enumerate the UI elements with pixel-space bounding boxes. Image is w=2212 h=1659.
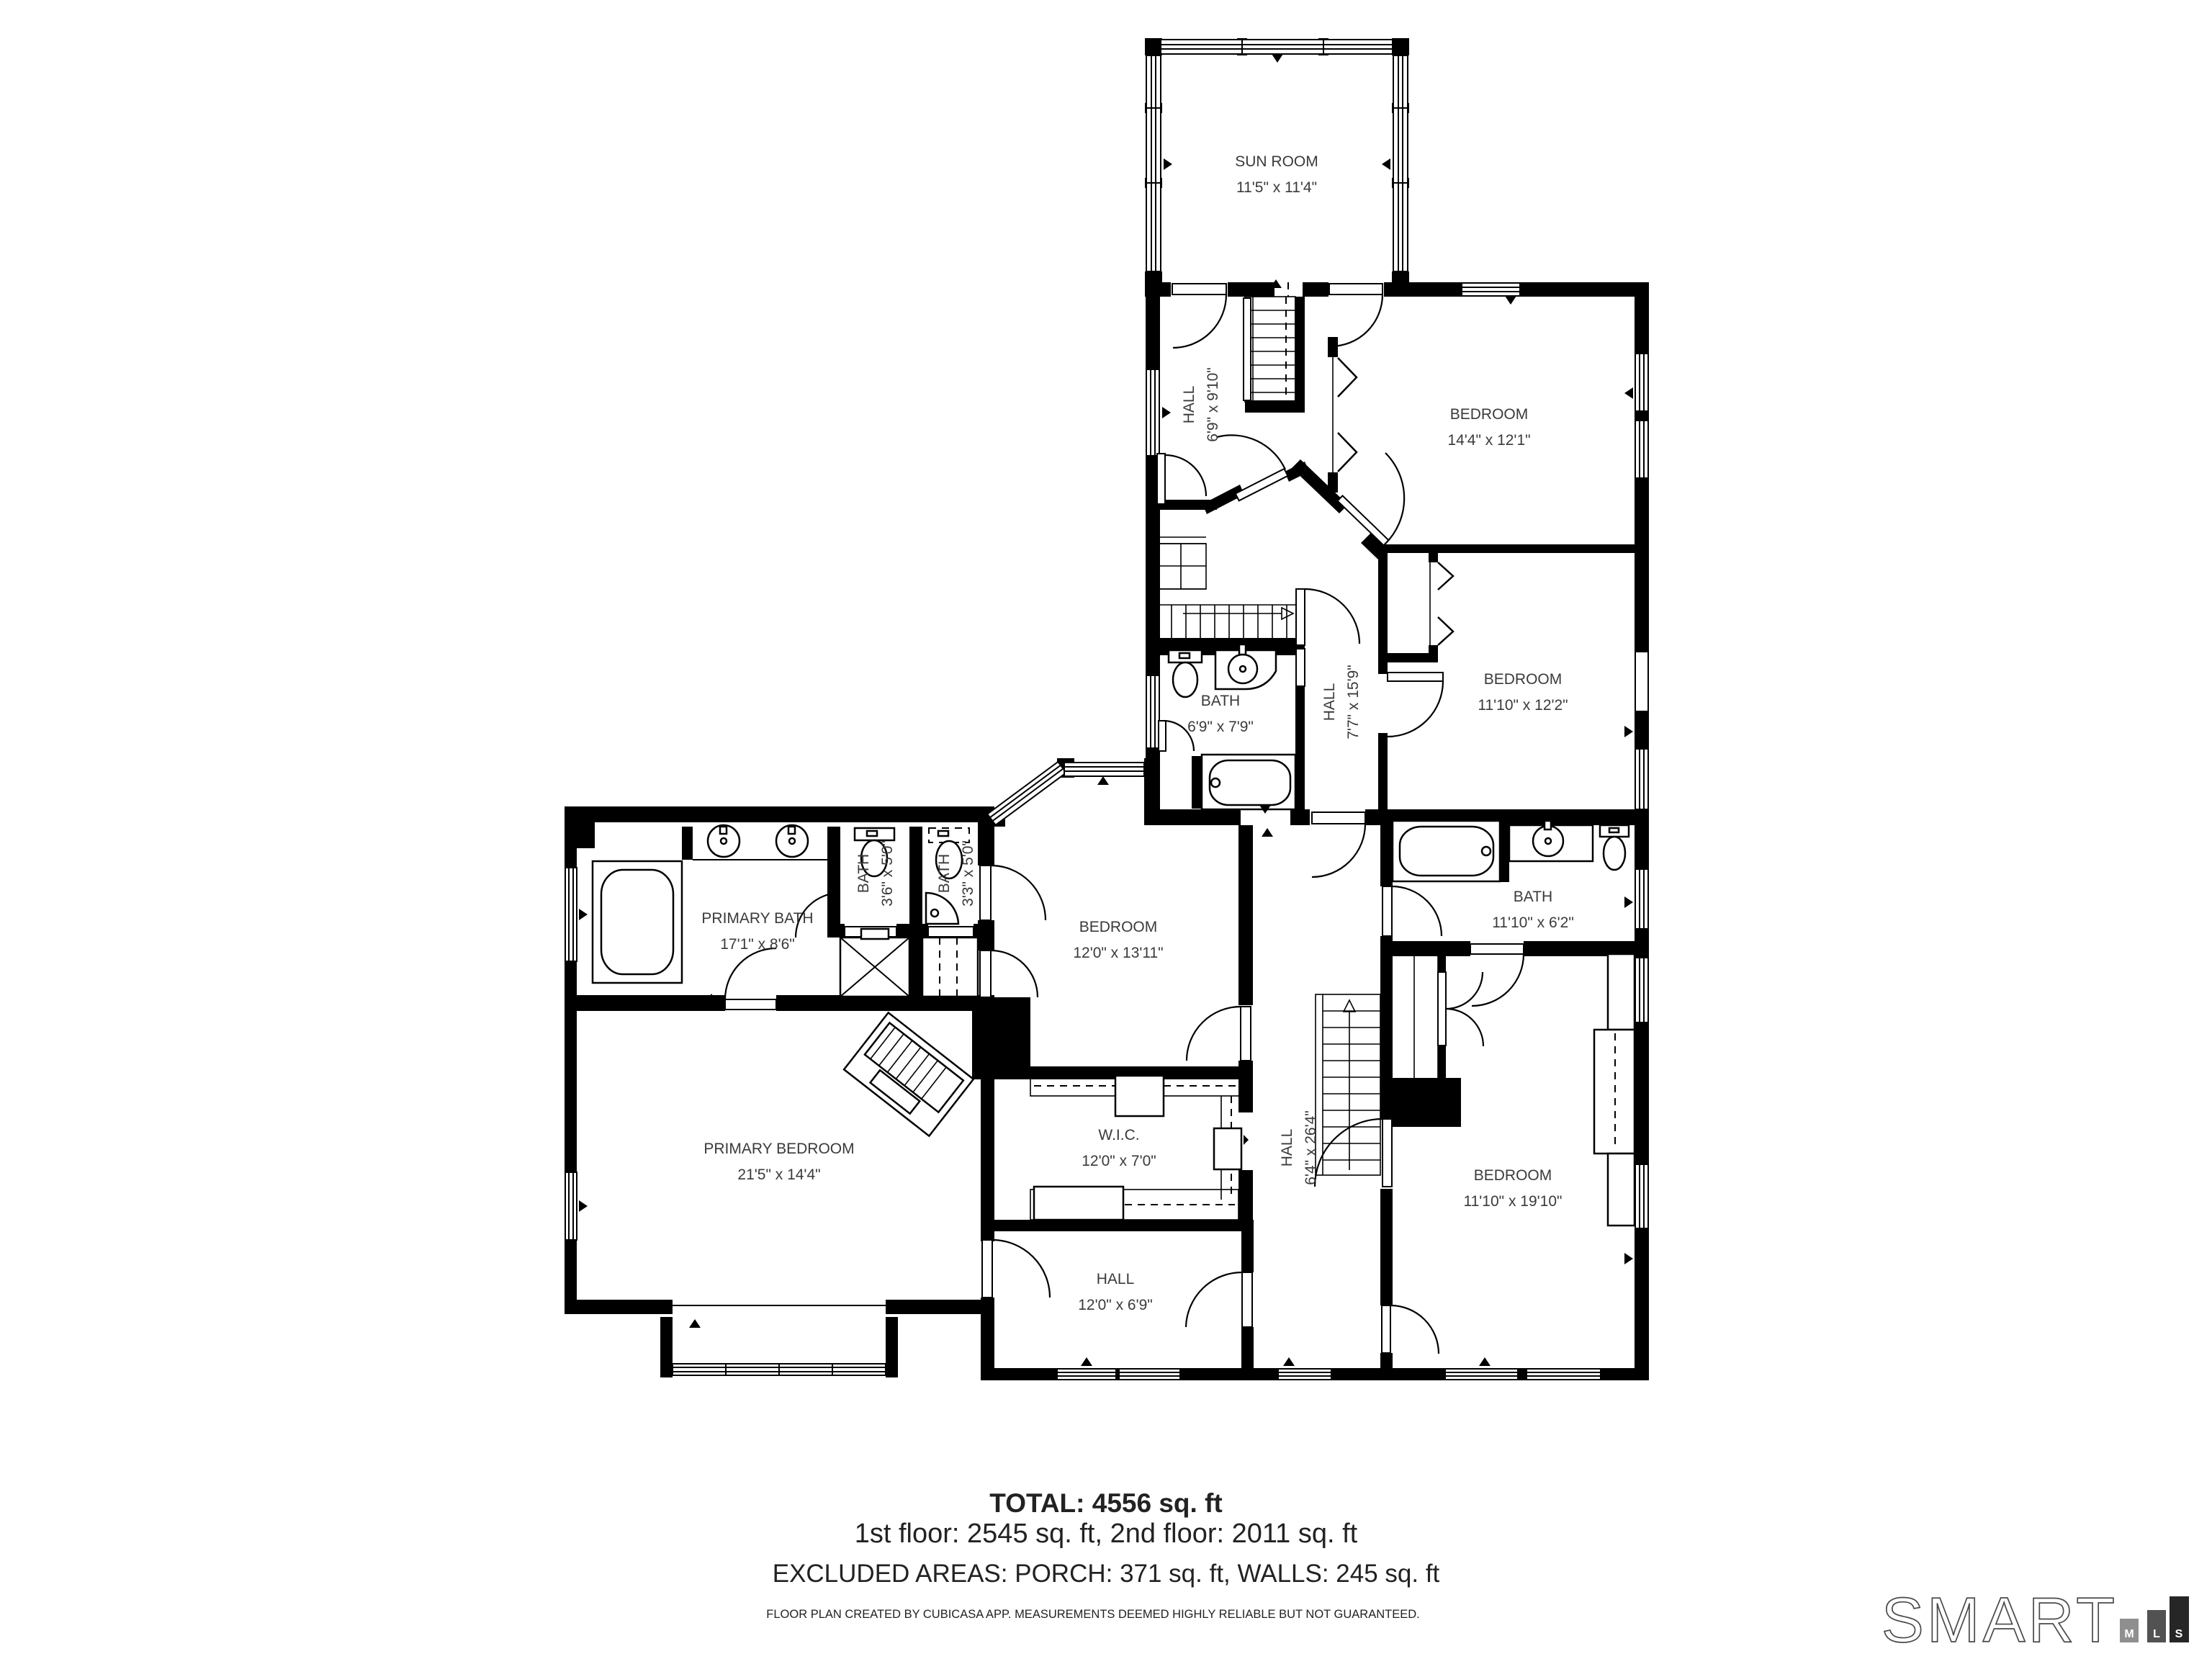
- svg-text:S: S: [2175, 1628, 2183, 1640]
- svg-text:11'10" x 12'2": 11'10" x 12'2": [1478, 697, 1568, 714]
- svg-text:HALL: HALL: [1097, 1271, 1135, 1287]
- svg-text:BATH: BATH: [1201, 693, 1240, 709]
- svg-text:PRIMARY BATH: PRIMARY BATH: [701, 910, 813, 927]
- svg-text:BEDROOM: BEDROOM: [1079, 919, 1158, 935]
- svg-text:6'9" x 7'9": 6'9" x 7'9": [1187, 719, 1254, 735]
- svg-text:EXCLUDED AREAS: PORCH: 371 sq.: EXCLUDED AREAS: PORCH: 371 sq. ft, WALLS…: [773, 1560, 1440, 1588]
- svg-text:11'10" x 6'2": 11'10" x 6'2": [1492, 914, 1574, 931]
- svg-text:3'6" x 5'0": 3'6" x 5'0": [879, 840, 896, 907]
- svg-text:BATH: BATH: [1514, 889, 1552, 905]
- svg-text:M: M: [2124, 1628, 2134, 1640]
- svg-text:L: L: [2153, 1628, 2160, 1640]
- svg-text:12'0" x 7'0": 12'0" x 7'0": [1082, 1153, 1156, 1169]
- svg-text:14'4" x 12'1": 14'4" x 12'1": [1447, 432, 1530, 449]
- svg-text:11'10" x 19'10": 11'10" x 19'10": [1464, 1193, 1563, 1210]
- svg-text:21'5" x 14'4": 21'5" x 14'4": [737, 1166, 820, 1183]
- svg-text:12'0" x 13'11": 12'0" x 13'11": [1073, 945, 1163, 961]
- svg-text:HALL: HALL: [1181, 386, 1197, 424]
- svg-text:SUN ROOM: SUN ROOM: [1235, 153, 1318, 170]
- svg-text:BATH: BATH: [936, 854, 953, 893]
- svg-text:11'5" x 11'4": 11'5" x 11'4": [1236, 179, 1317, 196]
- svg-text:W.I.C.: W.I.C.: [1098, 1127, 1139, 1143]
- svg-text:FLOOR PLAN CREATED BY CUBICASA: FLOOR PLAN CREATED BY CUBICASA APP. MEAS…: [766, 1608, 1419, 1621]
- svg-text:HALL: HALL: [1321, 683, 1338, 721]
- svg-text:3'3" x 5'0": 3'3" x 5'0": [960, 840, 976, 907]
- svg-text:HALL: HALL: [1279, 1129, 1295, 1167]
- svg-text:SMART: SMART: [1881, 1584, 2115, 1655]
- svg-text:BEDROOM: BEDROOM: [1484, 671, 1563, 688]
- svg-text:12'0" x 6'9": 12'0" x 6'9": [1078, 1297, 1153, 1313]
- svg-text:1st floor: 2545 sq. ft, 2nd fl: 1st floor: 2545 sq. ft, 2nd floor: 2011 …: [855, 1519, 1358, 1549]
- svg-text:6'4" x 26'4": 6'4" x 26'4": [1303, 1110, 1319, 1185]
- svg-text:TOTAL: 4556 sq. ft: TOTAL: 4556 sq. ft: [989, 1488, 1222, 1518]
- svg-text:17'1" x 8'6": 17'1" x 8'6": [720, 936, 795, 953]
- svg-text:6'9" x 9'10": 6'9" x 9'10": [1205, 367, 1221, 442]
- svg-text:PRIMARY BEDROOM: PRIMARY BEDROOM: [703, 1141, 854, 1157]
- svg-text:BEDROOM: BEDROOM: [1474, 1167, 1552, 1184]
- svg-text:BEDROOM: BEDROOM: [1450, 406, 1529, 423]
- svg-text:BATH: BATH: [855, 854, 872, 893]
- svg-text:7'7" x 15'9": 7'7" x 15'9": [1345, 665, 1362, 739]
